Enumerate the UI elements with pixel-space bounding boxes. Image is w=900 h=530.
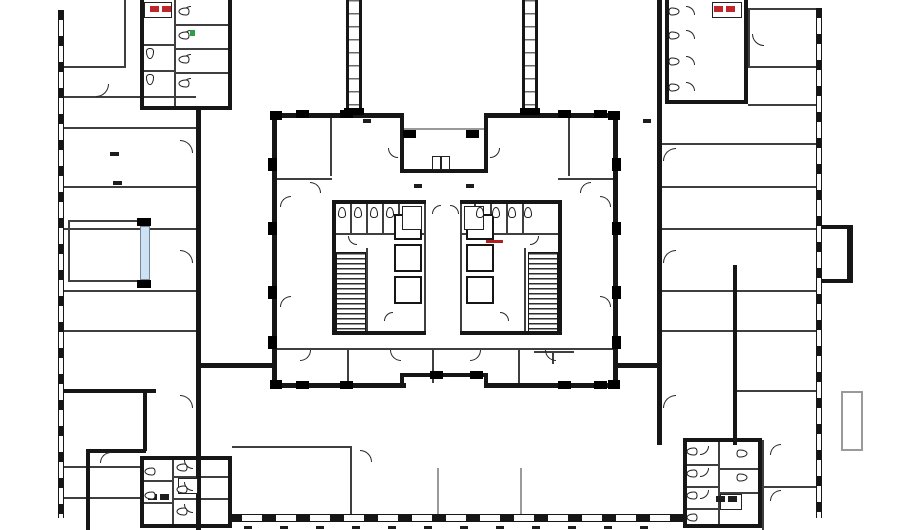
structural-column <box>268 286 277 299</box>
partition-wall <box>748 66 816 68</box>
wall-segment <box>272 113 404 118</box>
toilet-fixture-icon <box>737 474 748 482</box>
structural-column <box>430 371 443 379</box>
partition-wall <box>140 480 172 482</box>
partition-wall <box>762 440 764 530</box>
door-swing-icon <box>686 56 695 65</box>
window-wall <box>228 514 684 522</box>
partition-wall <box>558 178 613 180</box>
partition-wall <box>64 466 142 468</box>
furniture-mark <box>640 526 648 529</box>
wall-segment <box>143 389 147 451</box>
door-swing-icon <box>280 196 291 207</box>
structural-column <box>558 110 571 118</box>
toilet-fixture-icon <box>145 468 156 476</box>
toilet-fixture-icon <box>737 450 748 458</box>
door-swing-icon <box>432 205 441 214</box>
window-wall <box>816 8 822 518</box>
stair-flight <box>528 252 558 332</box>
toilet-fixture-icon <box>476 207 484 218</box>
partition-wall <box>64 127 196 129</box>
structural-column <box>296 381 309 389</box>
wall-segment <box>744 0 748 104</box>
elevator-shaft <box>394 244 422 272</box>
door-swing-icon <box>545 350 556 361</box>
accent-mark <box>486 240 503 243</box>
structural-column <box>594 110 607 118</box>
window-wall <box>58 10 64 518</box>
structural-column <box>403 130 416 138</box>
door-swing-icon <box>180 250 193 263</box>
toilet-fixture-icon <box>669 84 680 92</box>
furniture-mark <box>244 526 252 529</box>
toilet-fixture-icon <box>179 56 190 64</box>
partition-wall <box>568 118 570 176</box>
partition-wall <box>683 508 718 510</box>
partition-wall <box>718 442 720 524</box>
wall-segment <box>196 363 274 368</box>
structural-column <box>612 336 621 349</box>
wall-segment <box>88 449 146 453</box>
toilet-fixture-icon <box>687 492 698 500</box>
wall-segment <box>618 363 662 368</box>
furniture-mark <box>643 119 651 123</box>
partition-wall <box>662 143 816 145</box>
wall-segment <box>822 279 849 283</box>
toilet-fixture-icon <box>687 470 698 478</box>
partition-wall <box>662 228 816 230</box>
partition-wall <box>68 220 140 222</box>
toilet-fixture-icon <box>687 514 698 522</box>
toilet-fixture-icon <box>386 207 394 218</box>
furniture-mark <box>716 496 725 502</box>
sink-counter <box>441 156 450 170</box>
furniture-mark <box>532 526 540 529</box>
wall-segment <box>140 524 232 528</box>
partition-wall <box>174 0 176 106</box>
door-swing-icon <box>348 236 357 245</box>
door-swing-icon <box>663 250 676 263</box>
partition-wall <box>720 468 758 470</box>
toilet-fixture-icon <box>669 32 680 40</box>
door-swing-icon <box>700 468 709 477</box>
toilet-fixture-icon <box>669 8 680 16</box>
partition-wall <box>424 204 426 331</box>
furniture-mark <box>496 526 504 529</box>
door-swing-icon <box>180 140 193 153</box>
wall-segment <box>140 456 144 528</box>
partition-wall <box>662 186 816 188</box>
partition-wall <box>662 330 816 332</box>
wall-segment <box>822 225 849 229</box>
elevator-shaft <box>466 244 494 272</box>
toilet-fixture-icon <box>177 464 188 472</box>
door-swing-icon <box>180 395 193 408</box>
partition-wall <box>140 70 174 72</box>
partition-wall <box>347 350 349 383</box>
furniture-mark <box>113 181 122 185</box>
door-swing-icon <box>663 395 676 408</box>
partition-wall <box>350 204 352 233</box>
structural-column <box>137 218 151 226</box>
toilet-fixture-icon <box>508 207 516 218</box>
door-swing-icon <box>390 350 401 361</box>
accent-mark <box>190 30 195 36</box>
structural-column <box>470 371 483 379</box>
structural-column <box>344 108 364 115</box>
door-swing-icon <box>280 296 291 307</box>
toilet-fixture-icon <box>492 207 500 218</box>
furniture-mark <box>110 152 119 156</box>
partition-wall <box>683 486 718 488</box>
door-swing-icon <box>530 236 539 245</box>
toilet-fixture-icon <box>179 8 190 16</box>
door-swing-icon <box>770 490 781 501</box>
structural-column <box>612 286 621 299</box>
partition-wall <box>64 96 196 98</box>
partition-wall <box>64 290 196 292</box>
door-swing-icon <box>752 34 764 46</box>
glazing-panel <box>140 226 150 280</box>
partition-wall <box>277 348 613 350</box>
toilet-fixture-icon <box>354 207 362 218</box>
partition-wall <box>330 118 332 176</box>
partition-wall <box>662 290 816 292</box>
connector-corridor <box>346 0 362 112</box>
partition-wall <box>176 72 228 74</box>
wall-segment <box>665 100 748 104</box>
wall-segment <box>460 200 562 204</box>
partition-wall <box>172 458 174 524</box>
partition-wall <box>748 104 816 106</box>
partition-wall <box>460 204 462 331</box>
structural-column <box>466 130 479 138</box>
partition-wall <box>524 248 526 333</box>
toilet-fixture-icon <box>145 492 156 500</box>
furniture-mark <box>160 494 169 500</box>
accent-mark <box>714 6 723 12</box>
door-swing-icon <box>600 196 611 207</box>
floor-plan-canvas <box>0 0 900 530</box>
partition-wall <box>176 48 228 50</box>
door-swing-icon <box>686 82 695 91</box>
partition-wall <box>748 8 750 66</box>
door-swing-icon <box>500 312 509 321</box>
door-swing-icon <box>360 450 372 462</box>
door-swing-icon <box>580 182 591 193</box>
door-swing-icon <box>686 6 695 15</box>
structural-column <box>558 381 571 389</box>
toilet-fixture-icon <box>179 80 190 88</box>
structural-column <box>608 380 620 389</box>
structural-column <box>612 222 621 235</box>
door-swing-icon <box>770 444 781 455</box>
furniture-mark <box>414 184 422 188</box>
sink-counter <box>432 156 441 170</box>
partition-wall <box>518 350 520 383</box>
furniture-mark <box>316 526 324 529</box>
structural-column <box>268 158 277 171</box>
furniture-mark <box>363 119 371 123</box>
door-swing-icon <box>490 148 500 158</box>
structural-column <box>270 380 282 389</box>
partition-wall <box>64 66 126 68</box>
furniture-mark <box>460 526 468 529</box>
partition-wall <box>506 204 508 233</box>
structural-column <box>612 158 621 171</box>
toilet-fixture-icon <box>177 508 188 516</box>
door-swing-icon <box>700 446 709 455</box>
wall-segment <box>847 225 853 283</box>
wall-segment <box>558 200 562 335</box>
partition-wall <box>176 24 228 26</box>
accent-mark <box>162 6 171 12</box>
wall-segment <box>332 200 426 204</box>
partition-wall <box>366 248 368 333</box>
sink-counter <box>402 206 422 230</box>
toilet-fixture-icon <box>177 486 188 494</box>
partition-wall <box>350 446 352 516</box>
toilet-fixture-icon <box>669 58 680 66</box>
structural-column <box>608 111 620 120</box>
toilet-fixture-icon <box>146 74 154 85</box>
partition-wall <box>64 330 196 332</box>
partition-wall <box>64 228 196 230</box>
furniture-mark <box>728 496 737 502</box>
door-swing-icon <box>700 490 709 499</box>
door-swing-icon <box>384 312 393 321</box>
structural-column <box>270 111 282 120</box>
partition-wall <box>64 497 142 499</box>
partition-wall <box>277 178 332 180</box>
toilet-fixture-icon <box>179 32 190 40</box>
partition-wall <box>382 204 384 233</box>
furniture-mark <box>604 526 612 529</box>
toilet-fixture-icon <box>146 48 154 59</box>
furniture-mark <box>388 526 396 529</box>
wall-segment <box>683 524 762 528</box>
toilet-fixture-icon <box>370 207 378 218</box>
accent-mark <box>726 6 735 12</box>
toilet-fixture-icon <box>338 207 346 218</box>
light-line <box>841 449 863 451</box>
door-swing-icon <box>100 452 111 463</box>
structural-column <box>296 110 309 118</box>
furniture-mark <box>466 184 474 188</box>
elevator-shaft <box>466 276 494 304</box>
wall-segment <box>683 438 762 442</box>
partition-wall <box>64 186 196 188</box>
door-swing-icon <box>300 350 311 361</box>
structural-column <box>594 381 607 389</box>
door-swing-icon <box>470 350 481 361</box>
partition-wall <box>683 464 718 466</box>
toilet-fixture-icon <box>687 448 698 456</box>
wall-segment <box>484 373 488 385</box>
structural-column <box>340 381 353 389</box>
partition-wall <box>140 44 174 46</box>
wall-segment <box>228 0 232 110</box>
wall-segment <box>86 449 90 530</box>
furniture-mark <box>280 526 288 529</box>
connector-corridor <box>522 0 538 112</box>
partition-wall <box>522 204 524 233</box>
light-line <box>841 391 843 451</box>
structural-column <box>520 108 540 115</box>
door-swing-icon <box>310 182 321 193</box>
partition-wall <box>232 446 350 448</box>
accent-mark <box>150 6 159 12</box>
wall-segment <box>140 106 232 110</box>
furniture-mark <box>424 526 432 529</box>
partition-wall <box>748 8 816 10</box>
partition-wall <box>68 220 70 282</box>
wall-segment <box>733 265 737 445</box>
light-line <box>520 468 522 516</box>
elevator-shaft <box>394 276 422 304</box>
floor-plan-page <box>0 0 900 530</box>
wall-segment <box>484 113 488 173</box>
partition-wall <box>737 390 816 392</box>
door-swing-icon <box>600 296 611 307</box>
door-swing-icon <box>450 205 459 214</box>
partition-wall <box>140 502 172 504</box>
furniture-mark <box>568 526 576 529</box>
structural-column <box>268 336 277 349</box>
door-swing-icon <box>388 148 398 158</box>
structural-column <box>268 222 277 235</box>
door-swing-icon <box>663 148 676 161</box>
partition-wall <box>762 486 816 488</box>
toilet-fixture-icon <box>524 207 532 218</box>
light-line <box>437 468 439 516</box>
wall-segment <box>657 0 662 445</box>
wall-segment <box>400 113 404 173</box>
partition-wall <box>68 280 140 282</box>
wall-segment <box>196 110 201 530</box>
light-line <box>861 391 863 451</box>
wall-segment <box>758 438 762 528</box>
partition-wall <box>366 204 368 233</box>
furniture-mark <box>352 526 360 529</box>
structural-column <box>137 280 151 288</box>
stair-flight <box>336 252 366 332</box>
light-line <box>841 391 863 393</box>
door-swing-icon <box>686 30 695 39</box>
wall-segment <box>400 373 404 385</box>
wall-segment <box>272 383 406 388</box>
partition-wall <box>124 0 126 66</box>
